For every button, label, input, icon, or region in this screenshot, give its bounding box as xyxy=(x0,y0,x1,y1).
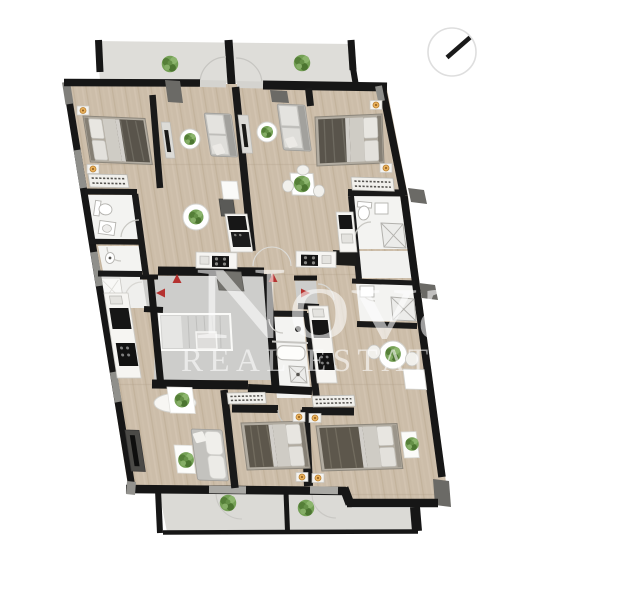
svg-text:REAL ESTATE: REAL ESTATE xyxy=(181,343,461,379)
